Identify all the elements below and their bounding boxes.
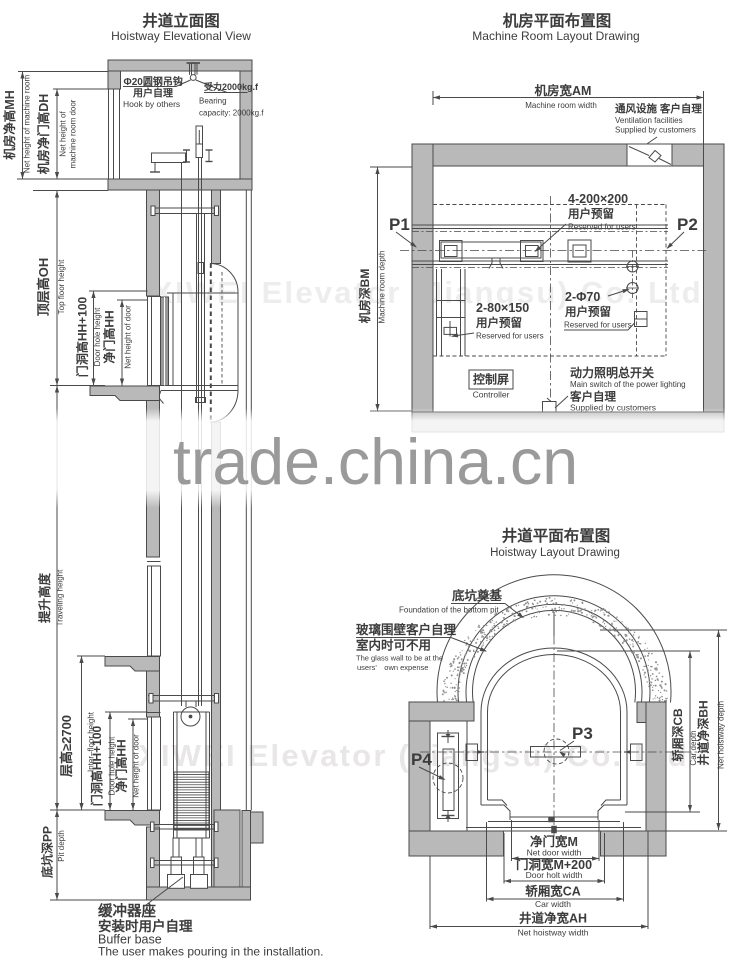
svg-text:4-200×200: 4-200×200 (568, 192, 628, 206)
svg-text:轿厢深CB: 轿厢深CB (670, 708, 685, 762)
svg-text:The user makes pouring in the: The user makes pouring in the installati… (98, 945, 323, 959)
svg-text:底坑深PP: 底坑深PP (40, 826, 55, 878)
svg-text:控制屏: 控制屏 (473, 372, 509, 387)
svg-text:Net height of machine room: Net height of machine room (23, 75, 32, 174)
svg-text:2-Φ70: 2-Φ70 (565, 290, 600, 304)
svg-text:机房深BM: 机房深BM (357, 269, 372, 324)
svg-text:Net hoistway width: Net hoistway width (518, 928, 589, 938)
svg-text:2-80×150: 2-80×150 (476, 301, 529, 315)
svg-text:层高≥2700: 层高≥2700 (59, 715, 74, 777)
svg-text:Reserved for users: Reserved for users (568, 223, 636, 232)
svg-text:Foundation of the bottom pit: Foundation of the bottom pit (399, 606, 499, 615)
svg-text:机房平面布置图: 机房平面布置图 (503, 11, 612, 30)
svg-text:Φ20圆钢吊钩: Φ20圆钢吊钩 (124, 75, 183, 88)
svg-text:P1: P1 (389, 215, 410, 234)
svg-text:Hook by others: Hook by others (123, 99, 180, 109)
svg-text:Machine Room Layout Drawing: Machine Room Layout Drawing (472, 29, 639, 43)
svg-text:用户预留: 用户预留 (475, 316, 522, 330)
svg-text:净门高HH: 净门高HH (102, 310, 117, 363)
svg-text:机房净高MH: 机房净高MH (2, 90, 17, 159)
svg-text:Net height of door: Net height of door (132, 734, 141, 798)
svg-text:用户预留: 用户预留 (567, 207, 614, 221)
svg-text:machine room door: machine room door (69, 99, 78, 168)
svg-text:The glass wall to be at the: The glass wall to be at the (356, 654, 443, 663)
svg-text:Reserved for users: Reserved for users (564, 321, 632, 330)
svg-text:井道净深BH: 井道净深BH (696, 700, 711, 765)
svg-text:门洞高HH+100: 门洞高HH+100 (75, 296, 90, 377)
svg-text:Supplied by customers: Supplied by customers (615, 126, 696, 135)
svg-text:净门高HH: 净门高HH (114, 739, 129, 792)
svg-text:Door holt width: Door holt width (526, 870, 583, 880)
svg-text:Controller: Controller (473, 390, 510, 400)
svg-text:Machine room depth: Machine room depth (378, 251, 387, 324)
svg-text:Car width: Car width (535, 899, 571, 909)
svg-text:Traveling height: Traveling height (56, 569, 65, 626)
svg-text:井道平面布置图: 井道平面布置图 (502, 526, 611, 545)
svg-text:P2: P2 (677, 215, 698, 234)
svg-text:提升高度: 提升高度 (37, 573, 52, 624)
svg-text:底坑奠基: 底坑奠基 (452, 588, 503, 603)
svg-text:Machine room width: Machine room width (525, 101, 597, 110)
svg-text:Reserved for users: Reserved for users (476, 332, 544, 341)
svg-text:受力2000kg.f: 受力2000kg.f (204, 81, 259, 92)
svg-text:客户自理: 客户自理 (569, 390, 616, 404)
svg-text:trade.china.cn: trade.china.cn (173, 426, 578, 498)
svg-text:室内时可不用: 室内时可不用 (356, 638, 431, 653)
svg-text:Hoistway Layout Drawing: Hoistway Layout Drawing (490, 547, 620, 559)
svg-text:Net height of: Net height of (59, 111, 68, 157)
svg-text:门洞高HH+100: 门洞高HH+100 (89, 725, 104, 806)
svg-text:井道立面图: 井道立面图 (142, 11, 220, 30)
svg-text:动力照明总开关: 动力照明总开关 (570, 365, 654, 380)
svg-text:users' own expense: users' own expense (357, 663, 428, 672)
svg-text:机房宽AM: 机房宽AM (535, 83, 592, 98)
svg-text:轿厢宽CA: 轿厢宽CA (525, 884, 581, 899)
svg-text:Top floor height: Top floor height (57, 259, 66, 314)
svg-text:P3: P3 (572, 724, 593, 743)
svg-text:Hoistway Elevational View: Hoistway Elevational View (111, 29, 251, 43)
svg-text:通风设施 客户自理: 通风设施 客户自理 (615, 102, 702, 115)
svg-text:P4: P4 (411, 750, 432, 769)
svg-text:capacity: 2000kg.f: capacity: 2000kg.f (199, 109, 264, 118)
svg-text:Net hoistway depth: Net hoistway depth (717, 701, 726, 769)
svg-text:用户自理: 用户自理 (132, 87, 173, 100)
svg-text:井道净宽AH: 井道净宽AH (519, 911, 587, 926)
svg-text:Bearing: Bearing (199, 97, 227, 106)
svg-text:Net door width: Net door width (527, 848, 582, 858)
svg-text:Pit depth: Pit depth (57, 830, 66, 862)
svg-text:机房净门高DH: 机房净门高DH (36, 94, 51, 175)
svg-text:顶层高OH: 顶层高OH (36, 258, 51, 317)
svg-text:玻璃围壁客户自理: 玻璃围壁客户自理 (356, 622, 457, 637)
svg-text:Main switch of the power light: Main switch of the power lighting (570, 380, 686, 389)
svg-text:用户预留: 用户预留 (564, 305, 611, 319)
svg-text:Door hole height: Door hole height (93, 307, 102, 366)
svg-text:缓冲器座: 缓冲器座 (98, 902, 156, 920)
svg-text:Net height of door: Net height of door (124, 305, 133, 369)
svg-text:Ventilation facilities: Ventilation facilities (615, 116, 683, 125)
